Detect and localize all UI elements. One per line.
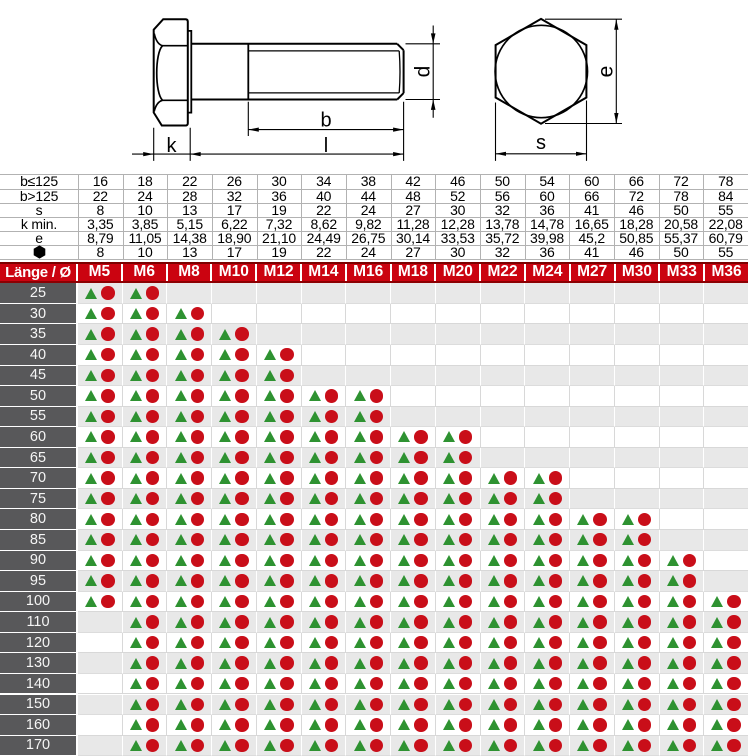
svg-text:s: s <box>536 132 546 154</box>
svg-text:b: b <box>320 110 331 132</box>
svg-text:e: e <box>595 66 618 78</box>
svg-text:l: l <box>324 135 328 157</box>
svg-text:d: d <box>412 66 435 78</box>
svg-text:k: k <box>167 135 178 157</box>
